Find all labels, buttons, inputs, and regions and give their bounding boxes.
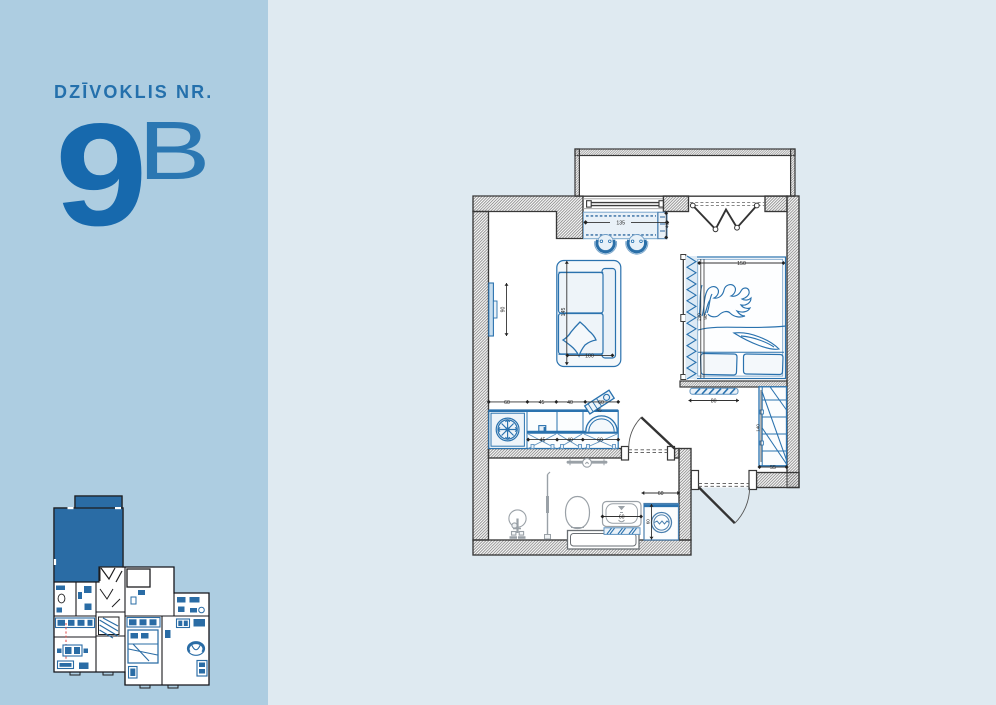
svg-text:45: 45	[596, 407, 602, 412]
svg-text:80: 80	[711, 398, 717, 404]
svg-text:45: 45	[539, 400, 545, 406]
svg-text:60: 60	[504, 400, 510, 406]
svg-text:200: 200	[696, 313, 701, 321]
svg-text:60: 60	[597, 438, 603, 444]
svg-text:150: 150	[737, 261, 746, 267]
svg-text:45: 45	[540, 438, 546, 444]
svg-text:60: 60	[619, 514, 625, 520]
svg-text:55: 55	[770, 465, 776, 471]
svg-text:60: 60	[658, 491, 664, 497]
svg-text:140: 140	[756, 424, 761, 432]
svg-text:60: 60	[598, 400, 604, 406]
svg-text:90: 90	[703, 314, 708, 320]
svg-text:60: 60	[646, 519, 651, 525]
svg-text:40: 40	[664, 222, 669, 228]
svg-text:100: 100	[585, 353, 594, 359]
svg-text:40: 40	[567, 438, 573, 444]
svg-text:145: 145	[561, 308, 567, 317]
svg-text:90: 90	[501, 307, 507, 313]
svg-text:40: 40	[567, 400, 573, 406]
svg-text:135: 135	[616, 220, 625, 226]
